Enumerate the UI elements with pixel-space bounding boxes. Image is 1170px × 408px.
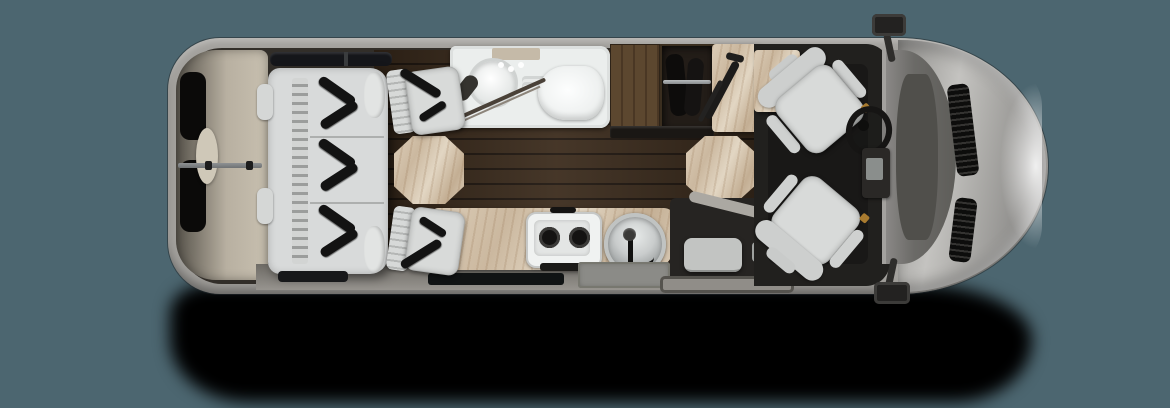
- dinette-seat-top: [385, 59, 466, 140]
- sofa-cushion-seam-1: [310, 136, 384, 138]
- sofa-bolster-bottom: [364, 226, 385, 272]
- hood-front-highlight: [990, 60, 1042, 272]
- bath-toiletry-dot-2: [508, 66, 514, 72]
- bottom-window-strip-rear: [278, 271, 348, 282]
- cabinet: [610, 44, 660, 132]
- bath-toiletry-dot-3: [518, 62, 524, 68]
- bath-toiletry-dot-1: [498, 62, 504, 68]
- sofa-bolster-top: [364, 72, 385, 118]
- cargo-rail-slider-right: [246, 161, 253, 170]
- dinette-table: [394, 136, 464, 204]
- sofa-armrest-bottom: [257, 188, 273, 224]
- stove-handle: [550, 207, 576, 213]
- windshield: [896, 74, 938, 240]
- side-mirror-top: [872, 14, 906, 36]
- dinette-seat-bottom: [385, 199, 466, 280]
- cargo-rail-slider-left: [205, 161, 212, 170]
- threshold-mat: [578, 262, 670, 288]
- electric-step: [684, 238, 742, 272]
- stove-burner-right: [569, 227, 590, 248]
- cabinet-counter-edge: [610, 126, 714, 138]
- rear-wall-bump: [196, 128, 218, 184]
- steering-wheel-hub: [858, 120, 869, 131]
- top-window-divider: [344, 52, 348, 66]
- sofa-cushion-seam-2: [310, 202, 384, 204]
- stove-burner-left: [539, 227, 560, 248]
- sofa-armrest-top: [257, 84, 273, 120]
- sofa-backrest-tufting: [292, 78, 308, 264]
- wardrobe-hanging-rod: [663, 80, 711, 84]
- console-screen: [866, 158, 883, 180]
- side-mirror-bottom: [874, 282, 910, 304]
- cab-seat-passenger-buckle: [859, 213, 870, 224]
- sink-faucet-head: [623, 228, 636, 241]
- toilet: [538, 66, 604, 120]
- top-window-strip: [270, 52, 392, 66]
- motorhome-floorplan-scene: [0, 0, 1170, 408]
